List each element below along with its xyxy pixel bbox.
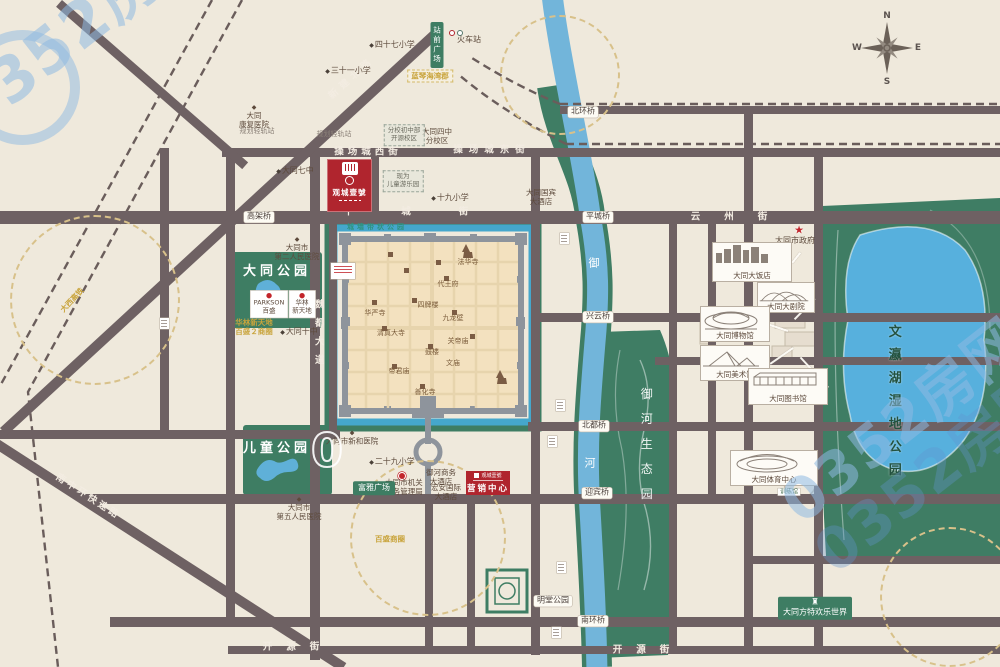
road-weidu-avenue	[310, 148, 320, 660]
planned-site-box: 现为 儿童游乐园	[383, 170, 424, 192]
rect-decoration	[761, 254, 768, 263]
project-emblem-ring-icon	[345, 176, 354, 185]
callout-dome: 大同博物馆	[700, 306, 770, 342]
skyline-sketch-icon	[715, 245, 789, 271]
watermark-zero: 0	[311, 423, 343, 478]
project-name: 观城壹號	[333, 187, 367, 198]
rect-decoration	[404, 268, 409, 273]
marketing-project-name: 观城壹號	[481, 472, 501, 479]
longhall-sketch-icon	[751, 371, 825, 394]
poi-label: 大同国宾 大酒店	[526, 188, 556, 206]
hospital-poi: 大同市 第二人民医院	[275, 237, 320, 261]
city-site-label: 帝君庙	[389, 367, 410, 375]
bridge-label-beidu: 北都桥	[579, 421, 609, 432]
rect-decoration	[372, 300, 377, 305]
mall-box: PARKSON 百盛	[251, 291, 288, 318]
rect-decoration	[436, 260, 441, 265]
svg-decoration	[701, 346, 761, 370]
road-segment	[371, 148, 379, 214]
bridge-label-beihuan: 北环桥	[568, 107, 598, 118]
bridge-label-yingbin: 迎宾桥	[582, 488, 612, 499]
rect-decoration	[412, 408, 444, 418]
rect-decoration	[743, 250, 749, 263]
path-decoration	[754, 373, 816, 377]
path-decoration	[709, 352, 741, 366]
div-decoration: 观城壹號	[474, 472, 501, 479]
rect-decoration	[716, 253, 722, 263]
project-logo-block: 观城壹號	[327, 159, 372, 212]
poi-marker	[560, 233, 569, 244]
ellipse-decoration	[713, 312, 749, 324]
mingtang-park-label: 明堂公园	[534, 596, 572, 607]
hospital-poi: 大同 康复医院	[239, 105, 269, 129]
station-bus-icon	[449, 30, 455, 36]
rect-decoration	[342, 362, 349, 369]
rect-decoration	[733, 245, 741, 263]
rect-decoration	[751, 247, 759, 263]
city-site-label: 善化寺	[415, 388, 436, 396]
datong-park-label: 大同公园	[243, 264, 311, 280]
callout-label: 大同大饭店	[733, 271, 771, 280]
district-label: 华林新天地 百盛２商圈	[235, 318, 273, 336]
road-name-kaiyuan-west: 开源街	[263, 641, 334, 652]
poi-marker	[548, 436, 557, 447]
planned-station-label: 规划轻轨站	[317, 130, 352, 138]
children-park-label: 儿童公园	[243, 441, 311, 457]
road-segment	[0, 430, 340, 439]
pyramid-sketch-icon	[703, 348, 767, 370]
project-divider	[339, 200, 361, 201]
poi-label: 大同四中 分校区	[422, 127, 452, 145]
rect-decoration	[388, 252, 393, 257]
rect-decoration	[470, 334, 475, 339]
mall-box: 华林 新天地	[289, 291, 315, 318]
river-name-he: 河	[585, 456, 596, 469]
road-segment	[329, 213, 337, 433]
g-decoration	[716, 245, 768, 263]
rect-decoration	[470, 234, 477, 241]
school-poi: 十九小学	[431, 193, 469, 203]
road-segment	[560, 106, 1000, 114]
city-site-label: 四牌楼	[418, 301, 439, 309]
project-emblem-icon	[342, 162, 358, 175]
school-poi: 三十一小学	[325, 66, 371, 76]
callout-label: 大同图书馆	[769, 394, 807, 403]
callout-label: 大同大剧院	[767, 302, 805, 311]
path-decoration	[782, 295, 806, 301]
residence-label: 蓝琴海湾郡	[407, 70, 453, 83]
callout-longhall: 大同图书馆	[748, 368, 828, 405]
poi-marker	[160, 318, 169, 329]
road-name-yunzhou-street: 云州街	[691, 211, 792, 222]
poi-marker	[331, 263, 355, 279]
marketing-emblem-icon	[474, 473, 479, 478]
yuhe-eco-park-label: 御河生态园	[639, 388, 653, 513]
fantawild-label: 大同方特欢乐世界	[778, 597, 852, 620]
government-star-icon: ★	[794, 223, 804, 236]
poi-marker	[556, 400, 565, 411]
rect-decoration	[517, 276, 524, 283]
rect-decoration	[412, 298, 417, 303]
compass-west: W	[852, 43, 862, 53]
school-poi: 二十九小学	[369, 457, 415, 467]
city-site-label: 关帝庙	[448, 337, 469, 345]
ellipse-decoration	[705, 313, 757, 329]
shell-sketch-icon	[760, 285, 812, 302]
road-segment	[669, 213, 677, 653]
river-name-yu: 御	[589, 256, 600, 269]
planned-station-label: 规划轻轨站	[240, 127, 275, 135]
road-nanhuan	[110, 617, 1000, 627]
school-poi: 大同七中	[276, 166, 314, 176]
map-canvas: 观城壹號 观城壹號 营销中心 N S W E 0352	[0, 0, 1000, 667]
rect-decoration	[339, 405, 351, 417]
school-poi: 大同十中	[280, 327, 318, 337]
rect-decoration	[339, 233, 351, 245]
compass-north: N	[883, 11, 891, 21]
road-segment	[531, 148, 540, 655]
compass-south: S	[884, 77, 890, 87]
polygon-decoration	[497, 378, 507, 384]
city-site-label: 鼓楼	[425, 348, 439, 356]
city-wall-belt-park-label: 城墙带状公园	[347, 223, 407, 231]
district-label: 百盛商圈	[375, 535, 405, 544]
road-name-kaiyuan-east: 开源街	[613, 644, 684, 655]
city-site-label: 九龙壁	[443, 314, 464, 322]
city-site-label: 文庙	[446, 359, 460, 367]
road-name-caochangcheng-east: 操场城东街	[453, 144, 531, 155]
highlight-circle-station	[500, 15, 620, 135]
city-site-label: 代王府	[438, 280, 459, 288]
planned-site-box: 分校初中部 开源校区	[384, 124, 425, 146]
station-square-label: 站前广场	[431, 22, 444, 68]
svg-decoration	[713, 243, 775, 265]
bridge-label-xingyun: 兴云桥	[583, 312, 613, 323]
rect-decoration	[754, 377, 816, 385]
svg-decoration	[701, 307, 761, 331]
compass-east: E	[915, 43, 921, 53]
rect-decoration	[515, 405, 527, 417]
g-decoration	[861, 22, 913, 74]
rect-decoration	[515, 233, 527, 245]
viaduct-label: 高架桥	[244, 212, 274, 223]
city-site-label: 华严寺	[365, 309, 386, 317]
hospital-poi: 大同市 第五人民医院	[277, 497, 322, 521]
rect-decoration	[424, 233, 436, 242]
rect-decoration	[724, 249, 731, 263]
city-site-label: 法华寺	[458, 258, 479, 266]
school-poi: 四十七小学	[369, 40, 415, 50]
poi-label: 宏安国际 大酒店	[431, 483, 461, 501]
compass-rose: N S W E	[852, 8, 922, 88]
highlight-circle-west	[10, 215, 180, 385]
marketing-center-label: 营销中心	[467, 482, 509, 494]
dome-sketch-icon	[703, 309, 767, 331]
marketing-center-block: 观城壹號 营销中心	[466, 471, 510, 495]
svg-decoration	[749, 369, 821, 391]
city-site-label: 清真大寺	[377, 329, 405, 337]
marketing-divider	[473, 480, 503, 481]
poi-marker	[557, 562, 566, 573]
rect-decoration	[384, 234, 391, 241]
bridge-label-nanhuan: 南环桥	[578, 616, 608, 627]
callout-skyline: 大同大饭店	[712, 242, 792, 282]
road-name-caochangcheng-west: 操场城西街	[334, 146, 402, 157]
bridge-label-pingcheng: 平城桥	[583, 212, 613, 223]
circle-decoration	[499, 583, 515, 599]
poi-marker	[552, 627, 561, 638]
svg-decoration	[758, 283, 810, 303]
rect-decoration	[517, 362, 524, 369]
plaza-box: 富雅广场	[353, 481, 395, 495]
callout-label: 大同博物馆	[716, 331, 754, 340]
ancient-city	[331, 225, 535, 497]
railway-station-label: 火车站	[457, 35, 481, 45]
